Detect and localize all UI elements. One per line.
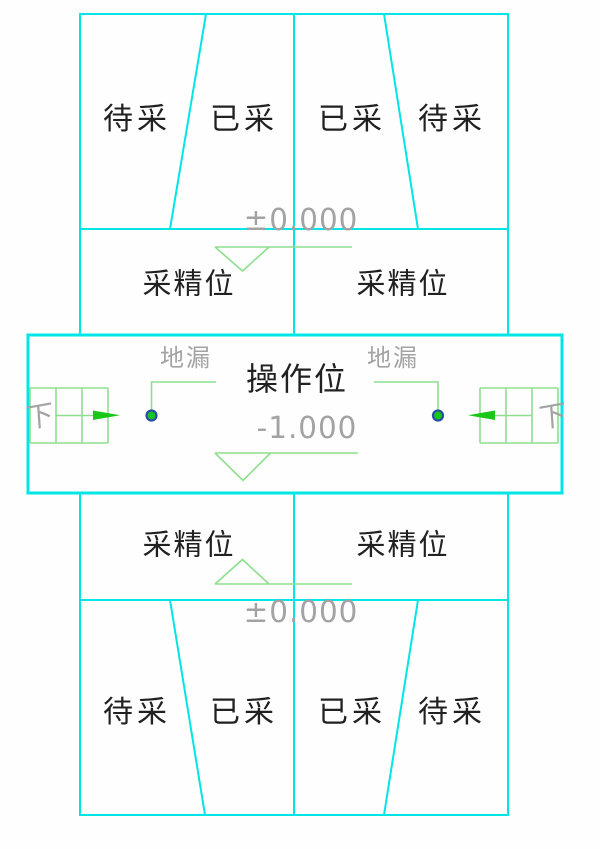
drain-label-right: 地漏 — [367, 346, 419, 370]
cell-label-pending-bottom-left: 待采 — [103, 698, 171, 728]
cell-label-pending-top-right: 待采 — [418, 105, 486, 135]
elevation-marker-icon — [215, 453, 358, 481]
cell-label-mined-bottom-midleft: 已采 — [210, 698, 278, 728]
bottom-slant-left — [170, 600, 205, 815]
elevation-label-pit: -1.000 — [257, 414, 358, 444]
top-slant-left — [170, 14, 206, 229]
cad-floor-plan: 待采 已采 已采 待采 ±0.000 采精位 采精位 地漏 地漏 操作位 -1.… — [0, 0, 600, 849]
floor-drain-icon — [433, 411, 443, 421]
room-label-lower-right: 采精位 — [356, 532, 449, 561]
down-label-right: 下 — [538, 400, 569, 433]
operation-area-title: 操作位 — [246, 363, 348, 395]
bottom-slant-right — [384, 600, 418, 815]
cell-label-mined-top-midleft: 已采 — [210, 105, 278, 135]
drain-leader-left — [152, 382, 217, 410]
elevation-marker-icon — [215, 247, 352, 271]
cell-label-pending-bottom-right: 待采 — [418, 698, 486, 728]
cell-label-mined-bottom-midright: 已采 — [318, 698, 386, 728]
down-label-left: 下 — [25, 400, 56, 433]
elevation-label-lower: ±0.000 — [244, 598, 359, 628]
top-slant-right — [384, 14, 418, 229]
cell-label-mined-top-midright: 已采 — [318, 105, 386, 135]
drain-leader-right — [374, 382, 438, 410]
drain-label-left: 地漏 — [160, 346, 212, 370]
elevation-label-upper: ±0.000 — [244, 206, 359, 236]
elevation-marker-icon — [215, 560, 352, 585]
cell-label-pending-top-left: 待采 — [103, 105, 171, 135]
direction-arrow-icon — [468, 411, 495, 421]
room-label-upper-left: 采精位 — [142, 271, 235, 300]
floor-drain-icon — [147, 411, 157, 421]
room-label-upper-right: 采精位 — [356, 271, 449, 300]
direction-arrow-icon — [93, 411, 120, 421]
room-label-lower-left: 采精位 — [142, 532, 235, 561]
